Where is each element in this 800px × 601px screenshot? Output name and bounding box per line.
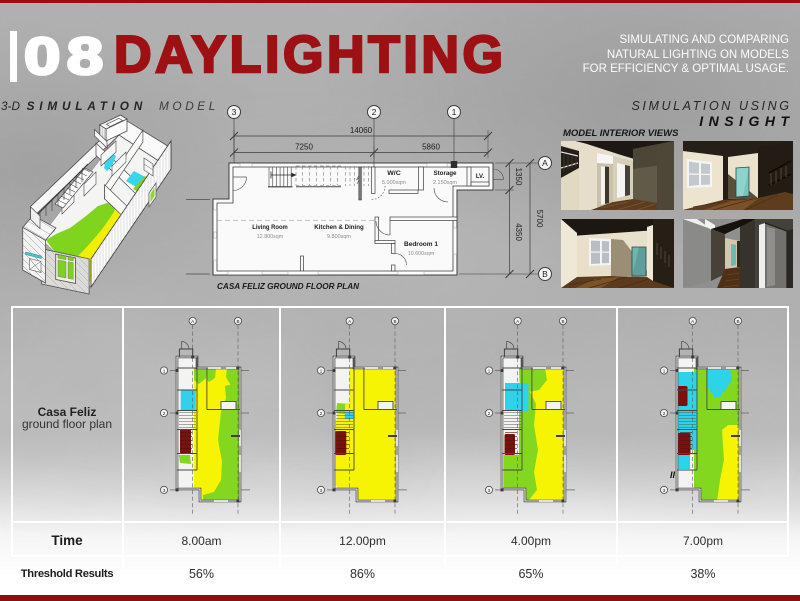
svg-text:10.600sqm: 10.600sqm [408,251,434,257]
svg-text:9.800sqm: 9.800sqm [327,234,351,240]
svg-text:LV.: LV. [476,174,485,180]
svg-text:1350: 1350 [514,168,523,186]
svg-text:B: B [542,269,548,279]
svg-text:5700: 5700 [535,210,544,228]
svg-text:2.150sqm: 2.150sqm [433,180,457,186]
svg-text:CASA FELIZ GROUND FLOOR PLAN: CASA FELIZ GROUND FLOOR PLAN [217,282,360,291]
svg-text:1: 1 [452,107,457,117]
svg-text:Bedroom 1: Bedroom 1 [404,241,438,248]
svg-text:W/C: W/C [387,170,401,177]
svg-text:3: 3 [232,107,237,117]
svg-text:7250: 7250 [295,143,313,152]
svg-text:Kitchen & Dining: Kitchen & Dining [314,224,364,231]
svg-text:5.000sqm: 5.000sqm [382,180,406,186]
svg-text:II: II [670,470,676,480]
svg-text:2: 2 [372,107,377,117]
svg-text:5860: 5860 [422,143,440,152]
svg-text:Storage: Storage [434,170,457,177]
svg-text:12.800sqm: 12.800sqm [257,234,283,240]
svg-text:A: A [542,158,548,168]
svg-text:14060: 14060 [350,126,373,135]
svg-text:4350: 4350 [514,223,523,241]
svg-text:Living Room: Living Room [252,224,288,231]
